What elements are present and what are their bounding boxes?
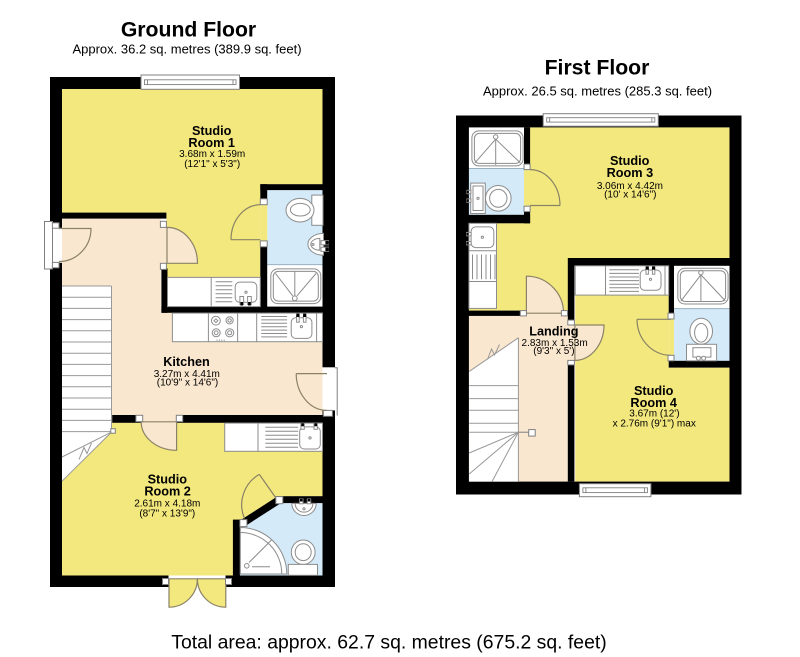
svg-text:Approx. 36.2 sq. metres (389.9: Approx. 36.2 sq. metres (389.9 sq. feet) (72, 42, 301, 57)
svg-text:(8'7" x 13'9"): (8'7" x 13'9") (139, 509, 195, 520)
svg-text:First Floor: First Floor (545, 57, 650, 80)
svg-text:x 2.76m (9'1") max: x 2.76m (9'1") max (613, 418, 696, 429)
svg-text:(10' x 14'6"): (10' x 14'6") (604, 190, 656, 201)
svg-text:Ground Floor: Ground Floor (121, 19, 256, 42)
svg-text:(10'9" x 14'6"): (10'9" x 14'6") (157, 378, 219, 389)
svg-text:Kitchen: Kitchen (163, 355, 210, 369)
svg-text:Room 2: Room 2 (144, 485, 191, 499)
svg-text:Approx. 26.5 sq. metres (285.3: Approx. 26.5 sq. metres (285.3 sq. feet) (483, 84, 712, 99)
svg-text:(9'3" x 5'): (9'3" x 5') (533, 346, 574, 357)
svg-text:(12'1" x 5'3"): (12'1" x 5'3") (184, 159, 240, 170)
svg-text:Room 3: Room 3 (607, 166, 654, 180)
svg-text:Total area: approx. 62.7 sq. m: Total area: approx. 62.7 sq. metres (675… (171, 632, 606, 654)
svg-text:3.68m x 1.59m: 3.68m x 1.59m (179, 149, 245, 160)
svg-text:Room 1: Room 1 (188, 136, 235, 150)
svg-text:Landing: Landing (529, 325, 578, 339)
